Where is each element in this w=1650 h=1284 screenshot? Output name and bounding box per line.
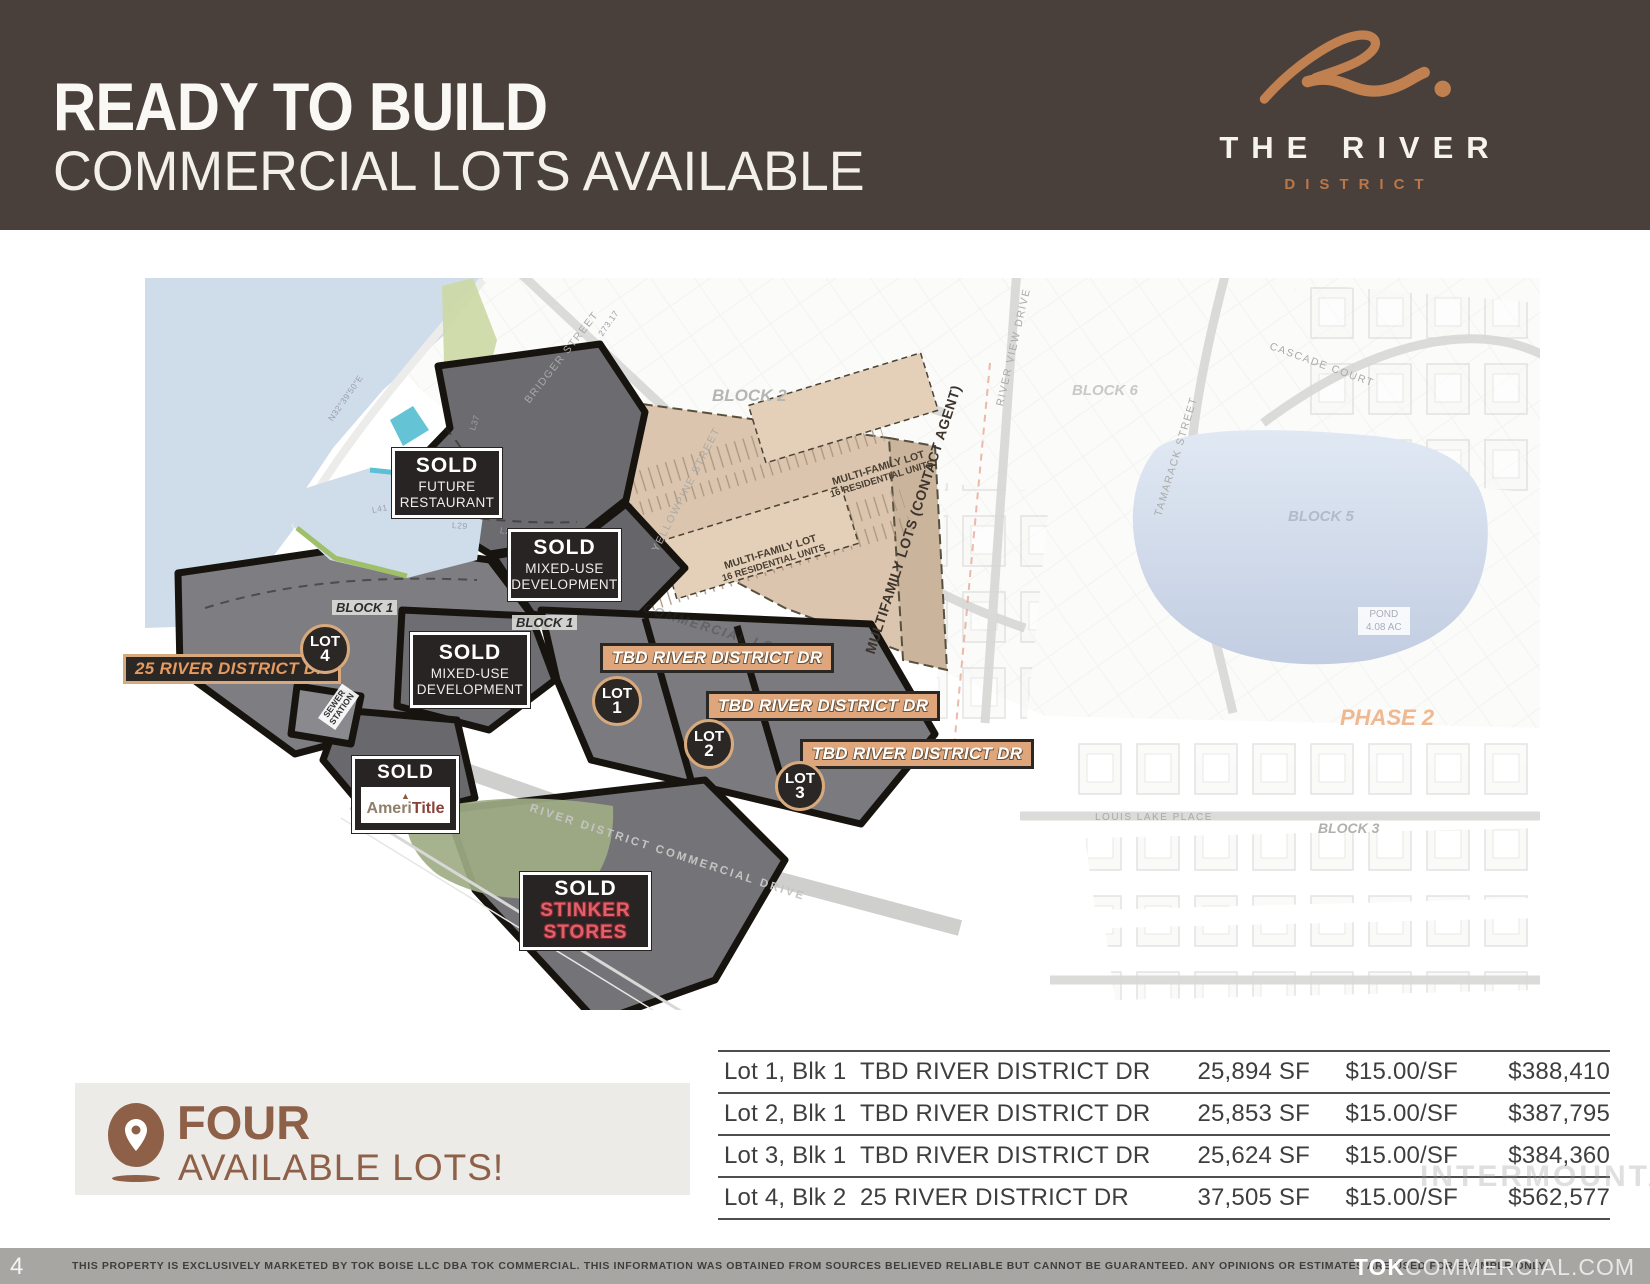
intermountain-watermark: INTERMOUNTAIN: [1420, 1160, 1650, 1194]
river-district-logo: THE RIVER DISTRICT: [1180, 18, 1528, 218]
pin-shadow: [112, 1175, 160, 1182]
block-label-5: BLOCK 5: [1288, 508, 1354, 525]
lot-cell: Lot 1, Blk 1: [718, 1058, 860, 1086]
disclaimer-text: THIS PROPERTY IS EXCLUSIVELY MARKETED BY…: [72, 1260, 1548, 1272]
phase-label: PHASE 2: [1340, 705, 1434, 731]
available-count: FOUR: [177, 1095, 310, 1150]
lot-badge-2: LOT 2: [684, 719, 734, 769]
size-cell: 25,894 SF: [1152, 1058, 1310, 1086]
page-title: READY TO BUILD: [53, 68, 547, 146]
rate-cell: $15.00/SF: [1310, 1058, 1458, 1086]
river-swoosh-icon: [1250, 24, 1455, 124]
table-row: Lot 2, Blk 1 TBD RIVER DISTRICT DR 25,85…: [718, 1092, 1610, 1134]
address-tag-tbd-2: TBD RIVER DISTRICT DR: [706, 691, 940, 721]
price-cell: $387,795: [1458, 1100, 1610, 1128]
size-cell: 25,624 SF: [1152, 1142, 1310, 1170]
block-label-2: BLOCK 2: [712, 386, 787, 406]
block-label-1b: BLOCK 1: [512, 615, 577, 630]
block-label-6: BLOCK 6: [1072, 382, 1138, 399]
rate-cell: $15.00/SF: [1310, 1100, 1458, 1128]
flyer-page: READY TO BUILD COMMERCIAL LOTS AVAILABLE…: [0, 0, 1650, 1284]
street-label-louislake: LOUIS LAKE PLACE: [1095, 812, 1213, 823]
address-cell: TBD RIVER DISTRICT DR: [860, 1142, 1152, 1170]
lot-badge-4: LOT 4: [300, 624, 350, 674]
block-label-3: BLOCK 3: [1318, 820, 1379, 836]
footer-website[interactable]: TOKCOMMERCIAL.COM: [1354, 1254, 1635, 1281]
page-number: 4: [10, 1253, 23, 1281]
sold-box-stinker-stores: SOLD STINKER STORES: [520, 872, 651, 950]
page-subtitle: COMMERCIAL LOTS AVAILABLE: [53, 138, 865, 203]
sold-box-mixed-use-upper: SOLD MIXED-USE DEVELOPMENT: [508, 529, 621, 601]
address-cell: TBD RIVER DISTRICT DR: [860, 1100, 1152, 1128]
price-cell: $388,410: [1458, 1058, 1610, 1086]
block-label-1a: BLOCK 1: [332, 600, 397, 615]
address-tag-tbd-3: TBD RIVER DISTRICT DR: [800, 739, 1034, 769]
address-tag-tbd-1: TBD RIVER DISTRICT DR: [600, 643, 834, 673]
footer-bar: 4 THIS PROPERTY IS EXCLUSIVELY MARKETED …: [0, 1248, 1650, 1284]
sold-box-mixed-use-lower: SOLD MIXED-USE DEVELOPMENT: [410, 632, 530, 708]
survey-label: L29: [452, 520, 468, 531]
lot-cell: Lot 3, Blk 1: [718, 1142, 860, 1170]
site-plan-map: BRIDGER STREET RIVER VIEW DRIVE TAMARACK…: [145, 278, 1540, 1010]
table-row: Lot 1, Blk 1 TBD RIVER DISTRICT DR 25,89…: [718, 1050, 1610, 1092]
pond-label: POND 4.08 AC: [1358, 607, 1410, 635]
lot-cell: Lot 2, Blk 1: [718, 1100, 860, 1128]
available-subtitle: AVAILABLE LOTS!: [178, 1147, 504, 1189]
logo-name: THE RIVER: [1180, 130, 1528, 166]
header-banner: READY TO BUILD COMMERCIAL LOTS AVAILABLE…: [0, 0, 1650, 230]
lot-badge-3: LOT 3: [775, 761, 825, 811]
amerititle-logo: ▲ AmeriTitle: [361, 787, 450, 823]
lot-badge-1: LOT 1: [592, 676, 642, 726]
lot-cell: Lot 4, Blk 2: [718, 1184, 860, 1212]
size-cell: 37,505 SF: [1152, 1184, 1310, 1212]
availability-panel: FOUR AVAILABLE LOTS!: [75, 1083, 690, 1195]
logo-sub: DISTRICT: [1180, 176, 1528, 193]
size-cell: 25,853 SF: [1152, 1100, 1310, 1128]
sold-box-amerititle: SOLD ▲ AmeriTitle: [352, 756, 459, 833]
address-cell: TBD RIVER DISTRICT DR: [860, 1058, 1152, 1086]
map-pin-icon: [108, 1103, 164, 1167]
lots-table: Lot 1, Blk 1 TBD RIVER DISTRICT DR 25,89…: [718, 1050, 1610, 1220]
sold-box-future-restaurant: SOLD FUTURE RESTAURANT: [392, 448, 502, 518]
address-cell: 25 RIVER DISTRICT DR: [860, 1184, 1152, 1212]
